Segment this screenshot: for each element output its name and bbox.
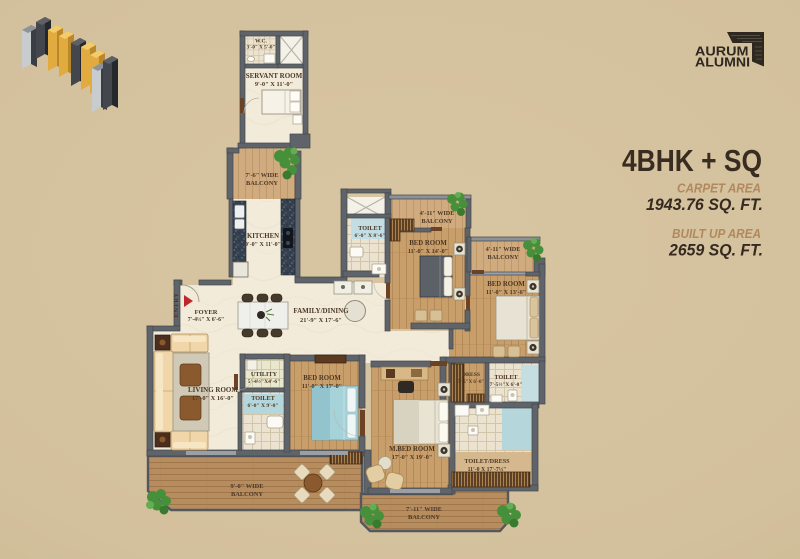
svg-text:2659 SQ. FT.: 2659 SQ. FT. <box>668 241 763 260</box>
svg-text:TOILET/DRESS: TOILET/DRESS <box>464 458 510 465</box>
svg-text:6'-0" X 9'-0": 6'-0" X 9'-0" <box>247 403 278 409</box>
svg-text:BED ROOM: BED ROOM <box>487 281 525 288</box>
svg-text:11'-0" X 14'-0": 11'-0" X 14'-0" <box>408 248 448 255</box>
svg-text:BUILT UP AREA: BUILT UP AREA <box>672 226 761 241</box>
svg-text:FOYER: FOYER <box>194 309 217 316</box>
svg-text:6'-0" X 8'-6": 6'-0" X 8'-6" <box>354 233 385 239</box>
svg-text:ENTRY: ENTRY <box>173 292 180 317</box>
svg-text:TOILET: TOILET <box>358 225 382 232</box>
svg-text:TOILET: TOILET <box>495 375 518 381</box>
svg-text:11'-0 X 17'-7½": 11'-0 X 17'-7½" <box>468 466 507 473</box>
svg-text:7'-5"X 6'-0": 7'-5"X 6'-0" <box>458 380 485 385</box>
svg-text:9'-0" X 11'-0": 9'-0" X 11'-0" <box>255 81 293 88</box>
svg-text:BALCONY: BALCONY <box>422 218 453 225</box>
svg-text:BALCONY: BALCONY <box>488 254 519 261</box>
svg-text:4BHK + SQ: 4BHK + SQ <box>622 143 762 178</box>
svg-text:7'-5½"X 6'-0": 7'-5½"X 6'-0" <box>490 381 523 388</box>
svg-text:BALCONY: BALCONY <box>408 514 440 521</box>
svg-text:LIVING ROOM: LIVING ROOM <box>188 386 238 394</box>
svg-text:KITCHEN: KITCHEN <box>247 233 279 240</box>
svg-text:3'-0" X 5'-0": 3'-0" X 5'-0" <box>247 45 276 51</box>
svg-text:17'-0" X 16'-0": 17'-0" X 16'-0" <box>192 395 234 402</box>
svg-text:17'-0" X 19'-0": 17'-0" X 19'-0" <box>392 454 433 461</box>
svg-text:1943.76 SQ. FT.: 1943.76 SQ. FT. <box>646 195 763 214</box>
svg-text:DRESS: DRESS <box>462 372 480 378</box>
svg-text:11'-0" X 17'-0": 11'-0" X 17'-0" <box>302 383 342 390</box>
svg-text:SERVANT ROOM: SERVANT ROOM <box>246 72 303 80</box>
svg-text:9'-0" X 11'-0": 9'-0" X 11'-0" <box>245 242 281 248</box>
svg-text:21'-9" X 17'-6": 21'-9" X 17'-6" <box>300 317 342 324</box>
svg-text:UTILITY: UTILITY <box>251 371 278 378</box>
svg-text:CARPET AREA: CARPET AREA <box>677 181 761 196</box>
svg-text:BED ROOM: BED ROOM <box>303 375 341 382</box>
svg-text:BALCONY: BALCONY <box>246 180 278 187</box>
svg-text:ALUMNI: ALUMNI <box>695 56 750 70</box>
svg-text:BED ROOM: BED ROOM <box>409 240 447 247</box>
svg-text:11'-0" X 13'-6": 11'-0" X 13'-6" <box>486 289 526 296</box>
svg-text:FAMILY/DINING: FAMILY/DINING <box>293 307 349 315</box>
svg-text:7'-4½" X 6'-6": 7'-4½" X 6'-6" <box>188 316 225 323</box>
svg-text:BALCONY: BALCONY <box>231 491 263 498</box>
svg-text:4'-11" WIDE: 4'-11" WIDE <box>486 246 521 253</box>
svg-text:7'-11" WIDE: 7'-11" WIDE <box>406 506 442 513</box>
svg-text:TOILET: TOILET <box>251 395 275 402</box>
svg-text:5'-4½"X4'-6": 5'-4½"X4'-6" <box>248 378 280 385</box>
svg-text:9'-0" WIDE: 9'-0" WIDE <box>230 483 263 490</box>
svg-text:7'-6" WIDE: 7'-6" WIDE <box>245 172 278 179</box>
svg-text:M.BED ROOM: M.BED ROOM <box>389 446 435 453</box>
svg-text:4'-11" WIDE: 4'-11" WIDE <box>420 210 455 217</box>
